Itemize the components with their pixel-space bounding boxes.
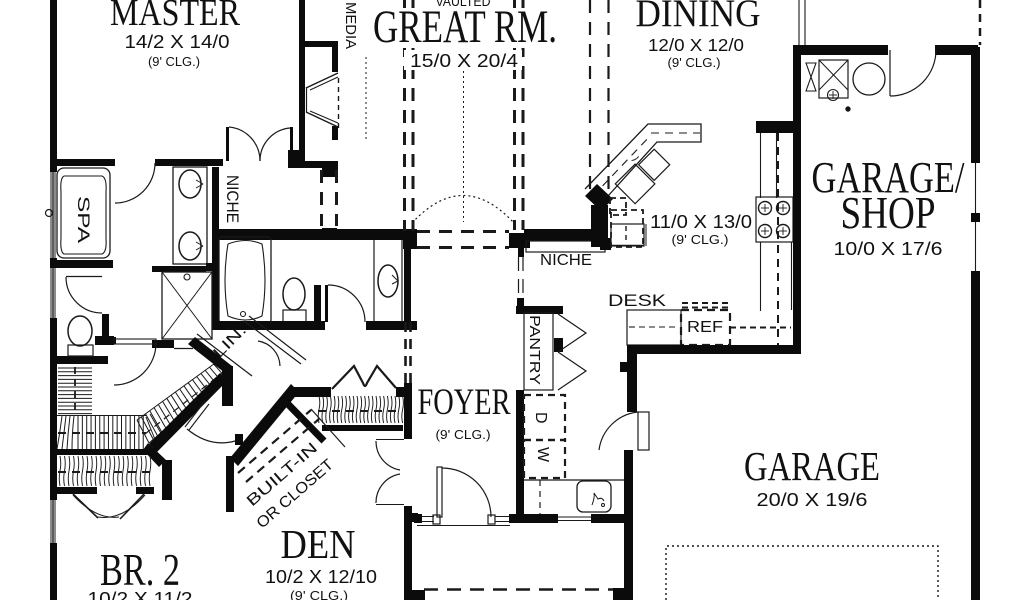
svg-text:(9' CLG.): (9' CLG.) (148, 55, 200, 69)
svg-text:GARAGE: GARAGE (744, 443, 880, 489)
svg-text:(9' CLG.): (9' CLG.) (672, 233, 729, 247)
svg-text:MEDIA: MEDIA (342, 2, 359, 49)
svg-text:NICHE: NICHE (540, 252, 592, 269)
svg-text:15/0 X 20/4: 15/0 X 20/4 (410, 51, 518, 71)
svg-text:DINING: DINING (636, 0, 761, 35)
svg-text:10/0 X 17/6: 10/0 X 17/6 (834, 239, 943, 259)
svg-text:20/0 X 19/6: 20/0 X 19/6 (757, 490, 868, 510)
svg-text:DESK: DESK (608, 291, 667, 310)
svg-text:12/0 X 12/0: 12/0 X 12/0 (648, 35, 744, 55)
svg-text:PANTRY: PANTRY (526, 315, 543, 385)
svg-text:14/2 X 14/0: 14/2 X 14/0 (125, 32, 230, 52)
svg-text:NICHE: NICHE (223, 175, 242, 223)
svg-text:11/0 X 13/0: 11/0 X 13/0 (650, 212, 752, 232)
svg-text:D: D (532, 412, 549, 424)
svg-text:10/2 X 12/10: 10/2 X 12/10 (265, 567, 377, 587)
svg-text:BR. 2: BR. 2 (100, 545, 180, 595)
svg-text:FOYER: FOYER (418, 382, 511, 423)
svg-text:SHOP: SHOP (841, 188, 936, 238)
svg-text:(9' CLG.): (9' CLG.) (668, 56, 721, 70)
svg-text:GREAT RM.: GREAT RM. (373, 1, 557, 53)
svg-text:DEN: DEN (281, 521, 356, 567)
svg-text:(9' CLG.): (9' CLG.) (290, 589, 348, 600)
svg-text:REF: REF (687, 319, 723, 336)
svg-text:SPA: SPA (74, 196, 93, 244)
svg-text:W: W (534, 447, 551, 463)
svg-text:MASTER: MASTER (110, 0, 241, 34)
svg-text:10/2 X 11/2: 10/2 X 11/2 (88, 589, 193, 600)
svg-text:(9' CLG.): (9' CLG.) (436, 428, 491, 442)
